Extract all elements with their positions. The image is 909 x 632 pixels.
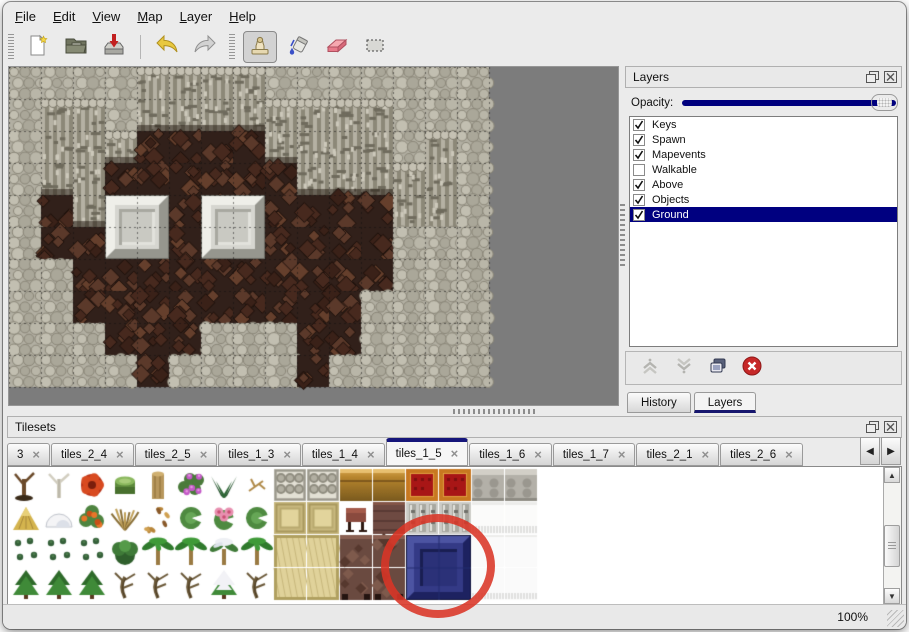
opacity-slider[interactable] xyxy=(682,100,896,106)
toolbar-grip[interactable] xyxy=(229,34,235,60)
layer-visibility-checkbox[interactable] xyxy=(633,194,645,206)
tileset-tab-tiles_2_5[interactable]: tiles_2_5× xyxy=(135,443,218,466)
tileset-tab-label: 3 xyxy=(17,449,23,461)
float-panel-icon[interactable] xyxy=(865,421,879,434)
close-panel-icon[interactable] xyxy=(883,421,897,434)
map-view[interactable] xyxy=(8,66,619,406)
menu-edit[interactable]: Edit xyxy=(53,9,75,24)
layer-name: Objects xyxy=(652,194,689,206)
scroll-down-icon[interactable]: ▼ xyxy=(884,588,900,604)
tileset-tab-label: tiles_2_6 xyxy=(730,449,776,461)
menu-map[interactable]: Map xyxy=(137,9,162,24)
tileset-tab-label: tiles_1_4 xyxy=(312,449,358,461)
eraser-tool-icon xyxy=(324,32,350,63)
select-tool-button[interactable] xyxy=(359,32,391,62)
redo-button[interactable] xyxy=(189,32,221,62)
new-file-button[interactable] xyxy=(22,32,54,62)
palette-scrollbar[interactable]: ▲ ▼ xyxy=(883,467,901,604)
layer-visibility-checkbox[interactable] xyxy=(633,134,645,146)
move-layer-up-icon xyxy=(639,356,661,381)
stamp-tool-icon xyxy=(247,32,273,63)
layer-row-keys[interactable]: Keys xyxy=(630,117,897,132)
menu-layer[interactable]: Layer xyxy=(180,9,213,24)
save-button[interactable] xyxy=(98,32,130,62)
layer-name: Spawn xyxy=(652,134,686,146)
tilesets-panel-header: Tilesets xyxy=(7,416,902,438)
scroll-up-icon[interactable]: ▲ xyxy=(884,467,900,483)
layer-actions xyxy=(625,351,902,385)
float-panel-icon[interactable] xyxy=(865,71,879,84)
tilesets-panel: Tilesets 3×tiles_2_4×tiles_2_5×tiles_1_3… xyxy=(7,416,902,605)
splitter-grip xyxy=(620,204,625,266)
undo-icon xyxy=(154,32,180,63)
menu-help[interactable]: Help xyxy=(229,9,256,24)
undo-button[interactable] xyxy=(151,32,183,62)
menu-view[interactable]: View xyxy=(92,9,120,24)
tileset-tab-label: tiles_1_6 xyxy=(479,449,525,461)
layer-visibility-checkbox[interactable] xyxy=(633,119,645,131)
layers-panel-header: Layers xyxy=(625,66,902,88)
move-layer-down-button[interactable] xyxy=(672,357,696,379)
toolbar xyxy=(3,30,906,64)
tileset-tab-strip: 3×tiles_2_4×tiles_2_5×tiles_1_3×tiles_1_… xyxy=(7,438,902,466)
delete-layer-icon xyxy=(742,356,762,381)
tileset-tab-label: tiles_2_5 xyxy=(145,449,191,461)
splitter-grip xyxy=(453,409,535,414)
resize-grip[interactable] xyxy=(887,610,904,627)
tileset-tab-label: tiles_2_1 xyxy=(646,449,692,461)
tileset-tab-label: tiles_2_4 xyxy=(61,449,107,461)
tileset-tab-tiles_1_4[interactable]: tiles_1_4× xyxy=(302,443,385,466)
scroll-tabs-right-icon[interactable]: ▶ xyxy=(881,437,901,465)
tab-close-icon[interactable]: × xyxy=(283,450,291,460)
layer-row-mapevents[interactable]: Mapevents xyxy=(630,147,897,162)
layer-row-above[interactable]: Above xyxy=(630,177,897,192)
layer-visibility-checkbox[interactable] xyxy=(633,209,645,221)
layer-name: Walkable xyxy=(652,164,697,176)
tab-close-icon[interactable]: × xyxy=(116,450,124,460)
menu-file[interactable]: File xyxy=(15,9,36,24)
tileset-palette: ▲ ▼ xyxy=(7,466,902,605)
move-layer-up-button[interactable] xyxy=(638,357,662,379)
tileset-tab-label: tiles_1_3 xyxy=(228,449,274,461)
tileset-tab-tiles_2_4[interactable]: tiles_2_4× xyxy=(51,443,134,466)
redo-icon xyxy=(192,32,218,63)
new-file-icon xyxy=(25,32,51,63)
tilesets-panel-title: Tilesets xyxy=(15,420,56,434)
tileset-tab-tiles_2_6[interactable]: tiles_2_6× xyxy=(720,443,803,466)
horizontal-splitter[interactable] xyxy=(3,404,906,416)
zoom-level: 100% xyxy=(837,610,868,624)
layer-row-spawn[interactable]: Spawn xyxy=(630,132,897,147)
tileset-tab-tiles_2_1[interactable]: tiles_2_1× xyxy=(636,443,719,466)
layer-row-objects[interactable]: Objects xyxy=(630,192,897,207)
menu-bar: FileEditViewMapLayerHelp xyxy=(3,2,906,30)
tab-close-icon[interactable]: × xyxy=(367,450,375,460)
select-tool-icon xyxy=(362,32,388,63)
layer-name: Above xyxy=(652,179,683,191)
tab-close-icon[interactable]: × xyxy=(785,450,793,460)
close-panel-icon[interactable] xyxy=(883,71,897,84)
tileset-tab-tiles_1_5[interactable]: tiles_1_5× xyxy=(386,438,469,466)
opacity-row: Opacity: xyxy=(631,93,896,113)
tileset-tab-tiles_1_3[interactable]: tiles_1_3× xyxy=(218,443,301,466)
tileset-tab-tiles_1_7[interactable]: tiles_1_7× xyxy=(553,443,636,466)
layer-name: Ground xyxy=(652,209,689,221)
scrollbar-thumb[interactable] xyxy=(884,525,900,567)
opacity-label: Opacity: xyxy=(631,97,673,109)
tileset-tab-label: tiles_1_5 xyxy=(396,448,442,460)
stamp-tool-button[interactable] xyxy=(243,31,277,63)
scroll-tabs-left-icon[interactable]: ◀ xyxy=(860,437,880,465)
tileset-palette-canvas[interactable] xyxy=(8,467,884,604)
layer-name: Mapevents xyxy=(652,149,706,161)
map-canvas[interactable] xyxy=(9,67,616,403)
tileset-tab-label: tiles_1_7 xyxy=(563,449,609,461)
fill-tool-icon xyxy=(286,32,312,63)
fill-tool-button[interactable] xyxy=(283,32,315,62)
opacity-slider-handle[interactable] xyxy=(871,94,898,111)
layer-list: KeysSpawnMapeventsWalkableAboveObjectsGr… xyxy=(629,116,898,347)
tab-close-icon[interactable]: × xyxy=(200,450,208,460)
delete-layer-button[interactable] xyxy=(740,357,764,379)
duplicate-layer-icon xyxy=(708,357,728,380)
layers-panel-title: Layers xyxy=(633,70,669,84)
eraser-tool-button[interactable] xyxy=(321,32,353,62)
tab-close-icon[interactable]: × xyxy=(702,450,710,460)
app-window: FileEditViewMapLayerHelp Layers Opacity xyxy=(3,2,906,629)
save-icon xyxy=(101,32,127,63)
layer-row-walkable[interactable]: Walkable xyxy=(630,162,897,177)
tileset-tab-tiles_1_6[interactable]: tiles_1_6× xyxy=(469,443,552,466)
layer-name: Keys xyxy=(652,119,676,131)
tileset-tab-3[interactable]: 3× xyxy=(7,443,50,466)
tab-close-icon[interactable]: × xyxy=(534,450,542,460)
open-folder-icon xyxy=(63,32,89,63)
layer-visibility-checkbox[interactable] xyxy=(633,164,645,176)
open-folder-button[interactable] xyxy=(60,32,92,62)
layer-visibility-checkbox[interactable] xyxy=(633,149,645,161)
duplicate-layer-button[interactable] xyxy=(706,357,730,379)
tab-close-icon[interactable]: × xyxy=(618,450,626,460)
status-bar: 100% xyxy=(3,604,906,629)
move-layer-down-icon xyxy=(673,356,695,381)
toolbar-separator xyxy=(140,35,141,59)
toolbar-grip[interactable] xyxy=(8,34,14,60)
tab-close-icon[interactable]: × xyxy=(451,449,459,459)
tab-close-icon[interactable]: × xyxy=(32,450,40,460)
layers-panel: Layers Opacity: KeysSpawnMapeventsWalkab… xyxy=(625,66,902,413)
screenshot-root: FileEditViewMapLayerHelp Layers Opacity xyxy=(0,0,909,632)
layer-visibility-checkbox[interactable] xyxy=(633,179,645,191)
layer-row-ground[interactable]: Ground xyxy=(630,207,897,222)
